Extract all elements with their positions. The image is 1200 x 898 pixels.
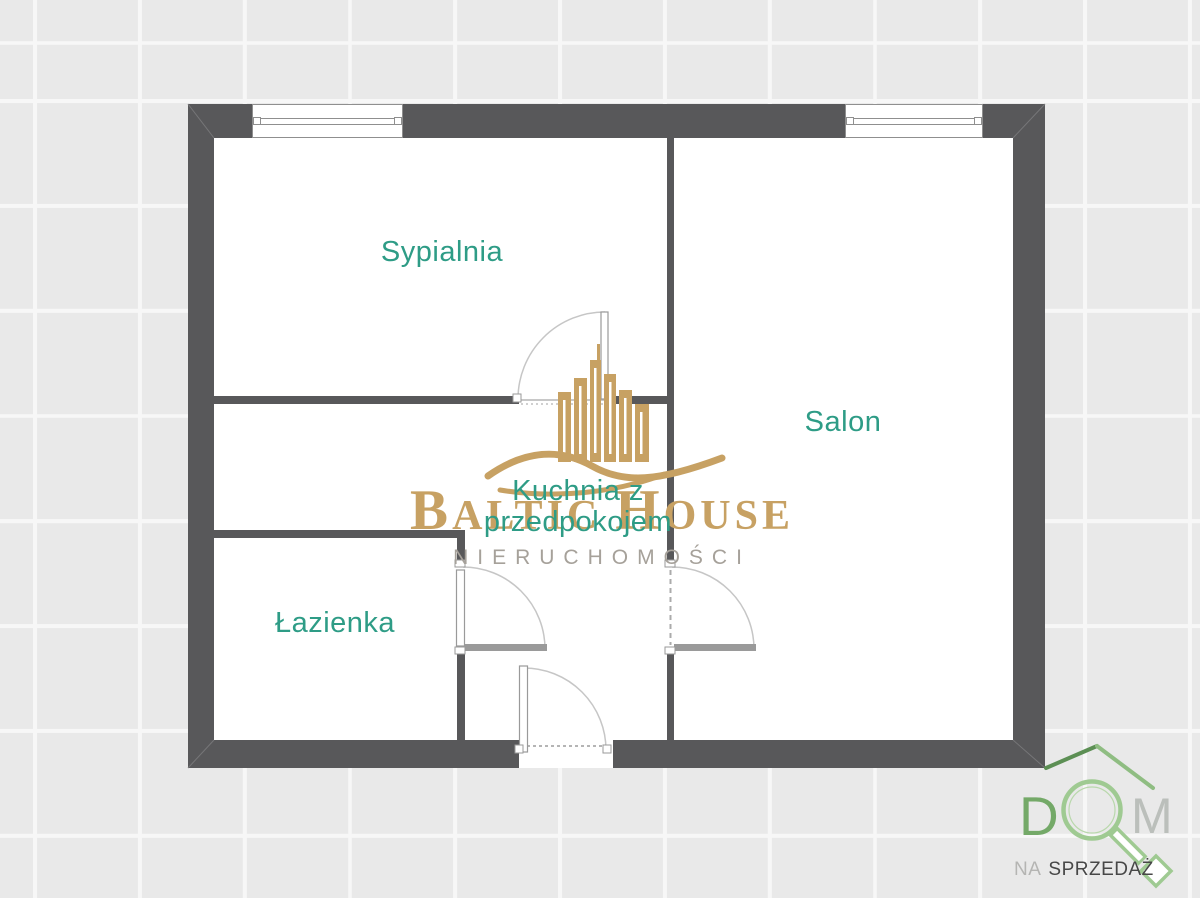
logo-letter-d: D — [1019, 785, 1059, 847]
window-frame-end-right — [974, 117, 982, 125]
entrance-opening — [519, 740, 613, 768]
logo-roof-right — [1097, 746, 1153, 788]
logo-roof-left — [1046, 746, 1097, 768]
window-pane — [257, 118, 398, 125]
window-frame-end-right — [394, 117, 402, 125]
room-label-lazienka: Łazienka — [185, 608, 485, 639]
logo-tagline: NASPRZEDAŻ — [1014, 859, 1174, 881]
window-pane — [850, 118, 978, 125]
logo-letter-m: M — [1131, 788, 1173, 844]
outer-wall-right — [1013, 104, 1045, 768]
room-label-kuchnia: Kuchnia z przedpokojem — [428, 476, 728, 538]
room-label-sypialnia: Sypialnia — [292, 237, 592, 268]
room-label-salon: Salon — [693, 407, 993, 438]
wall-livingroom-west-lower — [667, 648, 674, 740]
magnifier-lens-inner — [1069, 787, 1115, 833]
wall-bedroom-south-left — [214, 396, 519, 404]
watermark-subtitle: NIERUCHOMOŚCI — [302, 546, 902, 570]
floorplan-page: BALTICHOUSE NIERUCHOMOŚCI Sypialnia Salo… — [0, 0, 1200, 898]
tagline-na: NA — [1014, 859, 1041, 880]
wall-bathroom-east-lower — [457, 646, 465, 740]
room-label-kuchnia-line2: przedpokojem — [428, 507, 728, 538]
room-label-kuchnia-line1: Kuchnia z — [428, 476, 728, 507]
window-livingroom — [845, 104, 983, 138]
window-frame-end-left — [846, 117, 854, 125]
tagline-sprzedaz: SPRZEDAŻ — [1048, 859, 1153, 880]
building-skyline — [558, 344, 649, 462]
magnifier-lens-icon — [1064, 782, 1121, 839]
window-frame-end-left — [253, 117, 261, 125]
window-bedroom — [252, 104, 403, 138]
outer-wall-bottom — [188, 740, 1045, 768]
outer-wall-left — [188, 104, 214, 768]
